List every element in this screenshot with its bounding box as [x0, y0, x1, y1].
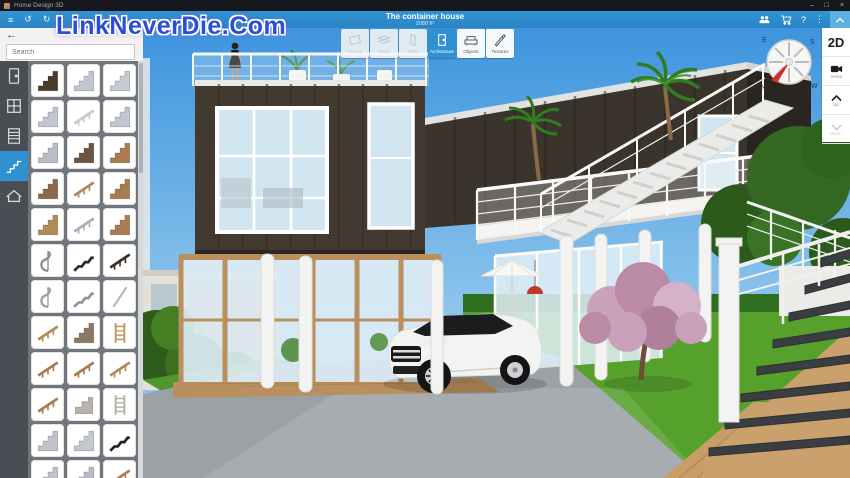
scene-3d: [143, 28, 850, 478]
thumbnail-handrail-curved[interactable]: [31, 316, 64, 349]
toolbar-right-icons: ?⋮: [758, 11, 824, 28]
floors-icon: [376, 32, 392, 49]
window-title: Home Design 3D: [14, 2, 64, 9]
viewport-3d[interactable]: [143, 28, 850, 478]
tab-label: Textures: [491, 49, 508, 54]
thumbnail-grid: [28, 61, 138, 478]
thumbnail-railing-wood-2[interactable]: [67, 352, 100, 385]
tab-architecture[interactable]: Architecture: [428, 29, 456, 58]
tab-objects[interactable]: Objects: [457, 29, 485, 58]
thumbnail-ladder-wood[interactable]: [103, 316, 136, 349]
thumbnail-handrail-pole[interactable]: [103, 280, 136, 313]
app-window: Home Design 3D –□× ≡↺↻ The container hou…: [0, 0, 850, 478]
thumbnail-stair-bent[interactable]: [103, 100, 136, 133]
shop-icon[interactable]: [780, 14, 792, 25]
tab-label: Objects: [463, 49, 478, 54]
thumbnail-stair-l-shaped-wood[interactable]: [31, 208, 64, 241]
floor-down-button[interactable]: Down: [822, 115, 850, 144]
more-button[interactable]: ⋮: [815, 14, 824, 25]
thumbnail-railing-wood-1[interactable]: [31, 352, 64, 385]
close-button[interactable]: ×: [840, 0, 844, 11]
thumbnail-stair-partial-3[interactable]: [103, 460, 136, 478]
back-button[interactable]: ←: [6, 29, 17, 41]
thumbnail-stair-straight-dark[interactable]: [103, 244, 136, 277]
toggle-2d-button[interactable]: 2D: [822, 28, 850, 57]
help-button[interactable]: ?: [801, 15, 806, 25]
scrollbar-thumb[interactable]: [139, 63, 143, 173]
compass-letter-e: W: [811, 83, 818, 90]
thumbnail-stair-spiral-small[interactable]: [31, 244, 64, 277]
main-toolbar: ≡↺↻ The container house 2088 ft² ?⋮: [0, 11, 850, 28]
tab-walls[interactable]: Walls: [399, 29, 427, 58]
armchair-icon: [463, 32, 479, 49]
compass-hub: [786, 59, 793, 66]
door-icon: [434, 32, 450, 49]
category-roofs[interactable]: [0, 181, 28, 211]
camera-icon: [830, 64, 843, 74]
tool-tabs: RoomsFloorsWallsArchitectureObjectsTextu…: [341, 29, 514, 58]
compass-letter-w: E: [762, 37, 767, 44]
compass-letter-n: N: [761, 85, 766, 92]
thumbnail-stair-dark-rail[interactable]: [67, 136, 100, 169]
thumbnail-stair-balustrade[interactable]: [31, 172, 64, 205]
thumbnail-railing-wood-3[interactable]: [103, 352, 136, 385]
tab-floors[interactable]: Floors: [370, 29, 398, 58]
thumbnail-stair-landing-dark[interactable]: [31, 64, 64, 97]
thumbnail-stair-zigzag-black[interactable]: [103, 424, 136, 457]
thumbnail-railing-curved-ornate[interactable]: [31, 388, 64, 421]
chevron-down-icon: [830, 123, 843, 131]
chevron-up-icon: [830, 94, 843, 102]
compass[interactable]: E S N W: [757, 30, 821, 94]
camera-view-button[interactable]: Aerial: [822, 57, 850, 86]
rooms-icon: [347, 32, 363, 49]
category-doors[interactable]: [0, 61, 28, 91]
minimize-button[interactable]: –: [810, 0, 814, 11]
thumbnail-stair-wood-rail[interactable]: [103, 136, 136, 169]
window-wall: [217, 104, 413, 232]
app-icon: [4, 3, 10, 9]
thumbnail-stair-roofed[interactable]: [67, 316, 100, 349]
tab-rooms[interactable]: Rooms: [341, 29, 369, 58]
thumbnail-stair-concrete-wedge[interactable]: [67, 64, 100, 97]
floor-up-button[interactable]: Up: [822, 86, 850, 115]
tab-label: Walls: [408, 49, 419, 54]
walls-icon: [405, 32, 421, 49]
thumbnail-ladder-roll[interactable]: [103, 388, 136, 421]
project-title: The container house: [0, 12, 850, 21]
chevron-up-icon: [837, 18, 844, 22]
thumbnail-stair-slab[interactable]: [67, 100, 100, 133]
thumbnail-stair-thin-rail[interactable]: [31, 136, 64, 169]
brush-icon: [492, 32, 508, 49]
thumbnail-stair-concrete-rail[interactable]: [103, 64, 136, 97]
titlebar: Home Design 3D –□×: [0, 0, 850, 11]
search-input[interactable]: [6, 44, 135, 60]
collapse-toolbar-button[interactable]: [830, 11, 850, 28]
window-controls: –□×: [810, 0, 844, 11]
compass-letter-s: S: [810, 39, 815, 46]
thumbnail-stair-wood-straight[interactable]: [67, 172, 100, 205]
tab-label: Floors: [378, 49, 391, 54]
thumbnail-stair-spiral[interactable]: [31, 280, 64, 313]
thumbnail-stair-gray-1[interactable]: [31, 424, 64, 457]
community-icon[interactable]: [758, 14, 771, 25]
maximize-button[interactable]: □: [825, 0, 829, 11]
thumbnail-stair-gray-2[interactable]: [67, 424, 100, 457]
thumbnail-stair-metal-thin[interactable]: [67, 208, 100, 241]
thumbnail-stair-wood-landing[interactable]: [103, 208, 136, 241]
category-stairs[interactable]: [0, 151, 28, 181]
category-rail: [0, 61, 28, 478]
sidebar-scrollbar[interactable]: [138, 61, 143, 478]
thumbnail-stair-partial-1[interactable]: [31, 460, 64, 478]
project-area: 2088 ft²: [0, 21, 850, 27]
category-windows[interactable]: [0, 91, 28, 121]
category-shutters[interactable]: [0, 121, 28, 151]
thumbnail-stair-zigzag-dark[interactable]: [67, 244, 100, 277]
thumbnail-stair-stringer-metal[interactable]: [67, 280, 100, 313]
sidebar-header: ←: [0, 28, 143, 62]
view-panel: 2D Aerial Up Down: [822, 28, 850, 142]
tab-textures[interactable]: Textures: [486, 29, 514, 58]
thumbnail-steps-stone-block[interactable]: [67, 388, 100, 421]
thumbnail-stair-wood-rail-2[interactable]: [103, 172, 136, 205]
thumbnail-stair-concrete-wide[interactable]: [31, 100, 64, 133]
tab-label: Rooms: [348, 49, 362, 54]
tab-label: Architecture: [430, 49, 454, 54]
thumbnail-stair-partial-2[interactable]: [67, 460, 100, 478]
sidebar: ←: [0, 28, 143, 478]
